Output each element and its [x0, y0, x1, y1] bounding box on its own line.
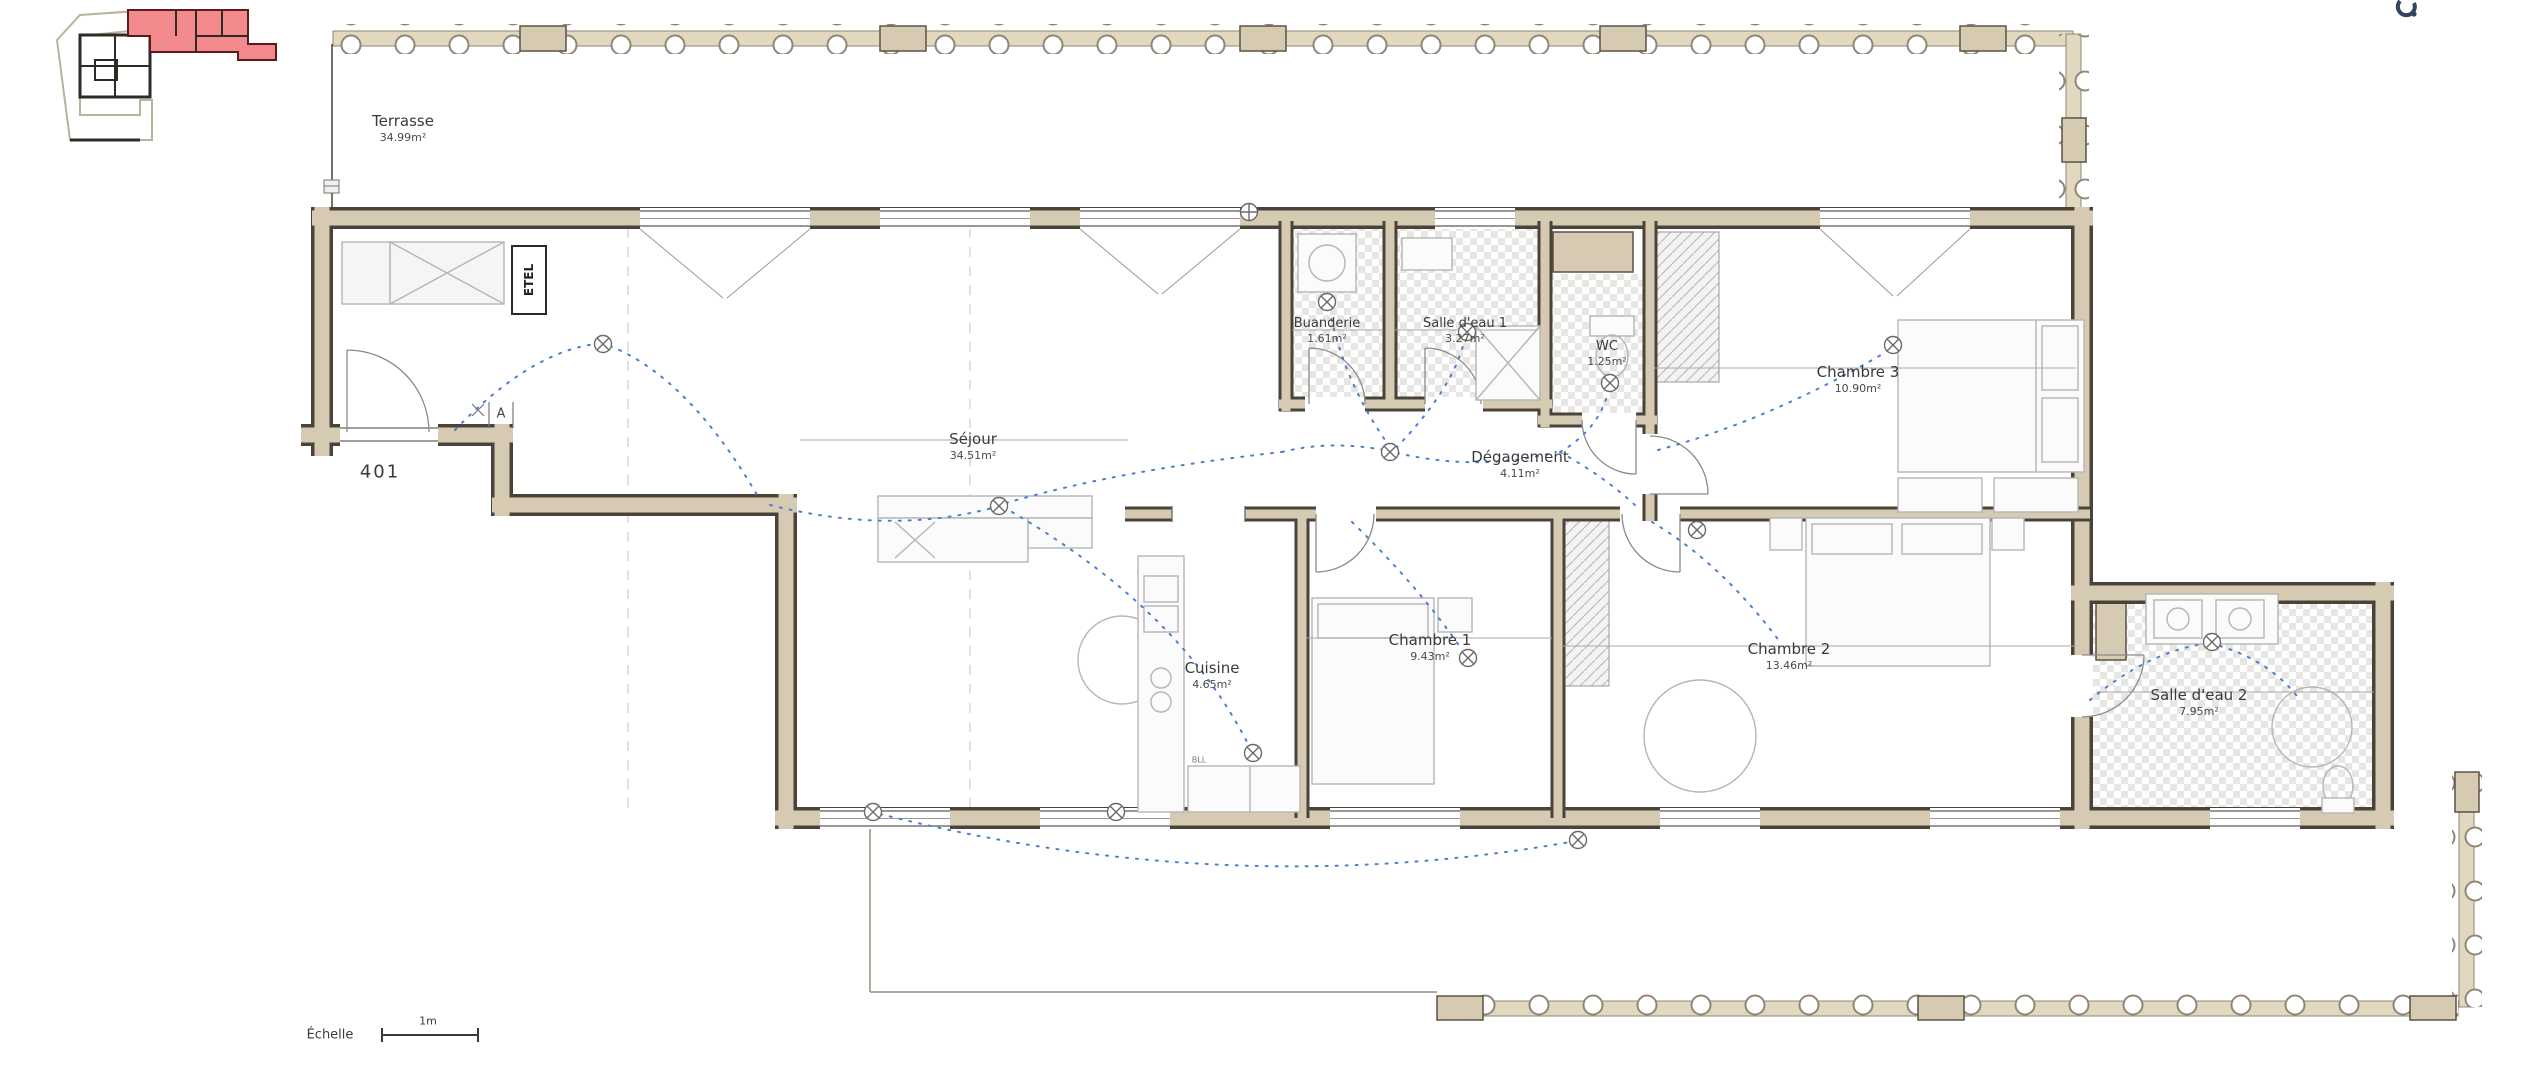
scale-length-label: 1m: [419, 1015, 437, 1028]
sofa: [878, 496, 1092, 562]
scale-label: Échelle: [307, 1028, 354, 1043]
bed-chambre-2: [1644, 518, 2024, 792]
unit-number-label: 401: [360, 462, 400, 483]
bed-chambre-1: [1312, 598, 1472, 784]
section-marker-a: A: [497, 407, 506, 422]
kitchen-fittings: [1138, 556, 1300, 812]
logo-icon: [2398, 1, 2417, 17]
etel-closet-label: ETEL: [522, 264, 536, 296]
washing-machine: [1298, 234, 1356, 292]
kitchen-note-label: BLL: [1192, 756, 1206, 765]
floor-plan-drawing: [0, 0, 2536, 1080]
terrace-railing: [324, 24, 2089, 209]
floor-plan-canvas: Terrasse 34.99m² Séjour 34.51m² Buanderi…: [0, 0, 2536, 1080]
scale-bar: [382, 1028, 478, 1042]
key-plan: [57, 10, 276, 140]
bed-chambre-3: [1898, 320, 2084, 512]
